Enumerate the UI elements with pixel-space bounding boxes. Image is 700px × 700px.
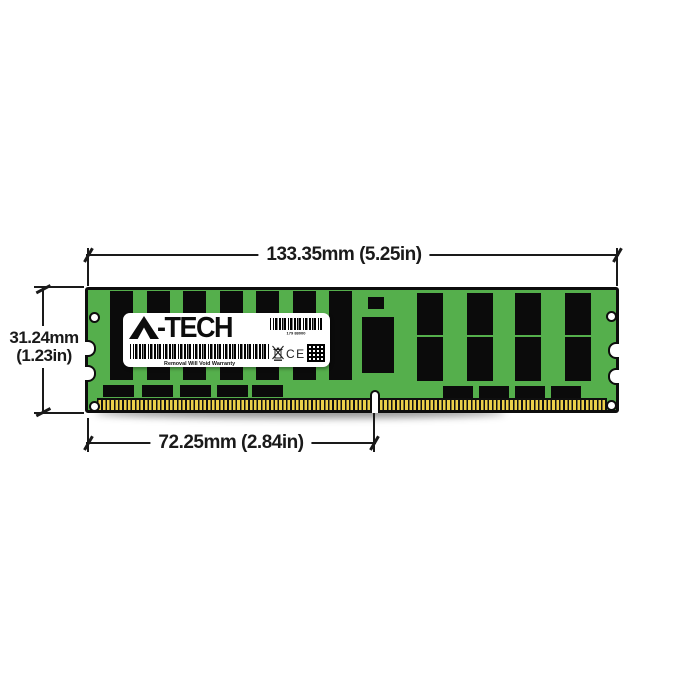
height-dimension-label: 31.24mm (1.23in) [7, 326, 80, 368]
gold-pin-strip [97, 398, 607, 410]
qr-code-icon [307, 344, 325, 362]
edge-notch [85, 365, 96, 382]
dram-chip [565, 293, 591, 335]
a-tech-logo-text: -TECH [157, 316, 232, 339]
barcode-number-wrap: 179 88000 [270, 331, 322, 337]
component-chip [103, 385, 134, 397]
pin-dimension-label: 72.25mm (2.84in) [150, 432, 311, 454]
product-diagram: 133.35mm (5.25in) 31.24mm (1.23in) -TECH… [0, 0, 700, 700]
a-tech-logo-triangle-a [129, 316, 159, 339]
component-chip [515, 386, 545, 398]
dram-chip [467, 293, 493, 335]
mounting-hole [606, 311, 617, 322]
warranty-text-wrap: Removal Will Void Warranty [130, 360, 269, 367]
component-chip [180, 385, 211, 397]
dram-chip [417, 337, 443, 381]
component-chip [368, 297, 384, 309]
dram-chip [515, 293, 541, 335]
component-chip [551, 386, 581, 398]
height-dimension-mm: 31.24mm [9, 329, 78, 347]
component-chip [142, 385, 173, 397]
a-tech-logo: -TECH [129, 316, 232, 339]
memory-module: -TECH 179 88000 Removal Will Void Warran… [85, 287, 619, 413]
barcode-number: 179 88000 [270, 331, 322, 336]
edge-notch [608, 342, 619, 359]
ce-mark-icon: CE [286, 347, 306, 361]
product-label: -TECH 179 88000 Removal Will Void Warran… [123, 313, 330, 367]
edge-notch [608, 368, 619, 385]
mounting-hole [89, 401, 100, 412]
component-chip [252, 385, 283, 397]
height-dimension-in: (1.23in) [9, 347, 78, 365]
edge-notch [85, 340, 96, 357]
dram-chip [417, 293, 443, 335]
connector-key-notch [370, 390, 380, 413]
dram-chip [515, 337, 541, 381]
register-chip [362, 317, 394, 373]
dram-chip [329, 291, 352, 380]
component-chip [217, 385, 248, 397]
barcode-icon [270, 318, 322, 330]
barcode-icon [130, 344, 269, 359]
component-chip [443, 386, 473, 398]
weee-crossed-bin-icon [272, 345, 284, 361]
mounting-hole [89, 312, 100, 323]
component-chip [479, 386, 509, 398]
dram-chip [467, 337, 493, 381]
mounting-hole [606, 400, 617, 411]
warranty-text: Removal Will Void Warranty [130, 360, 269, 366]
dram-chip [565, 337, 591, 381]
width-dimension-label: 133.35mm (5.25in) [258, 244, 429, 266]
